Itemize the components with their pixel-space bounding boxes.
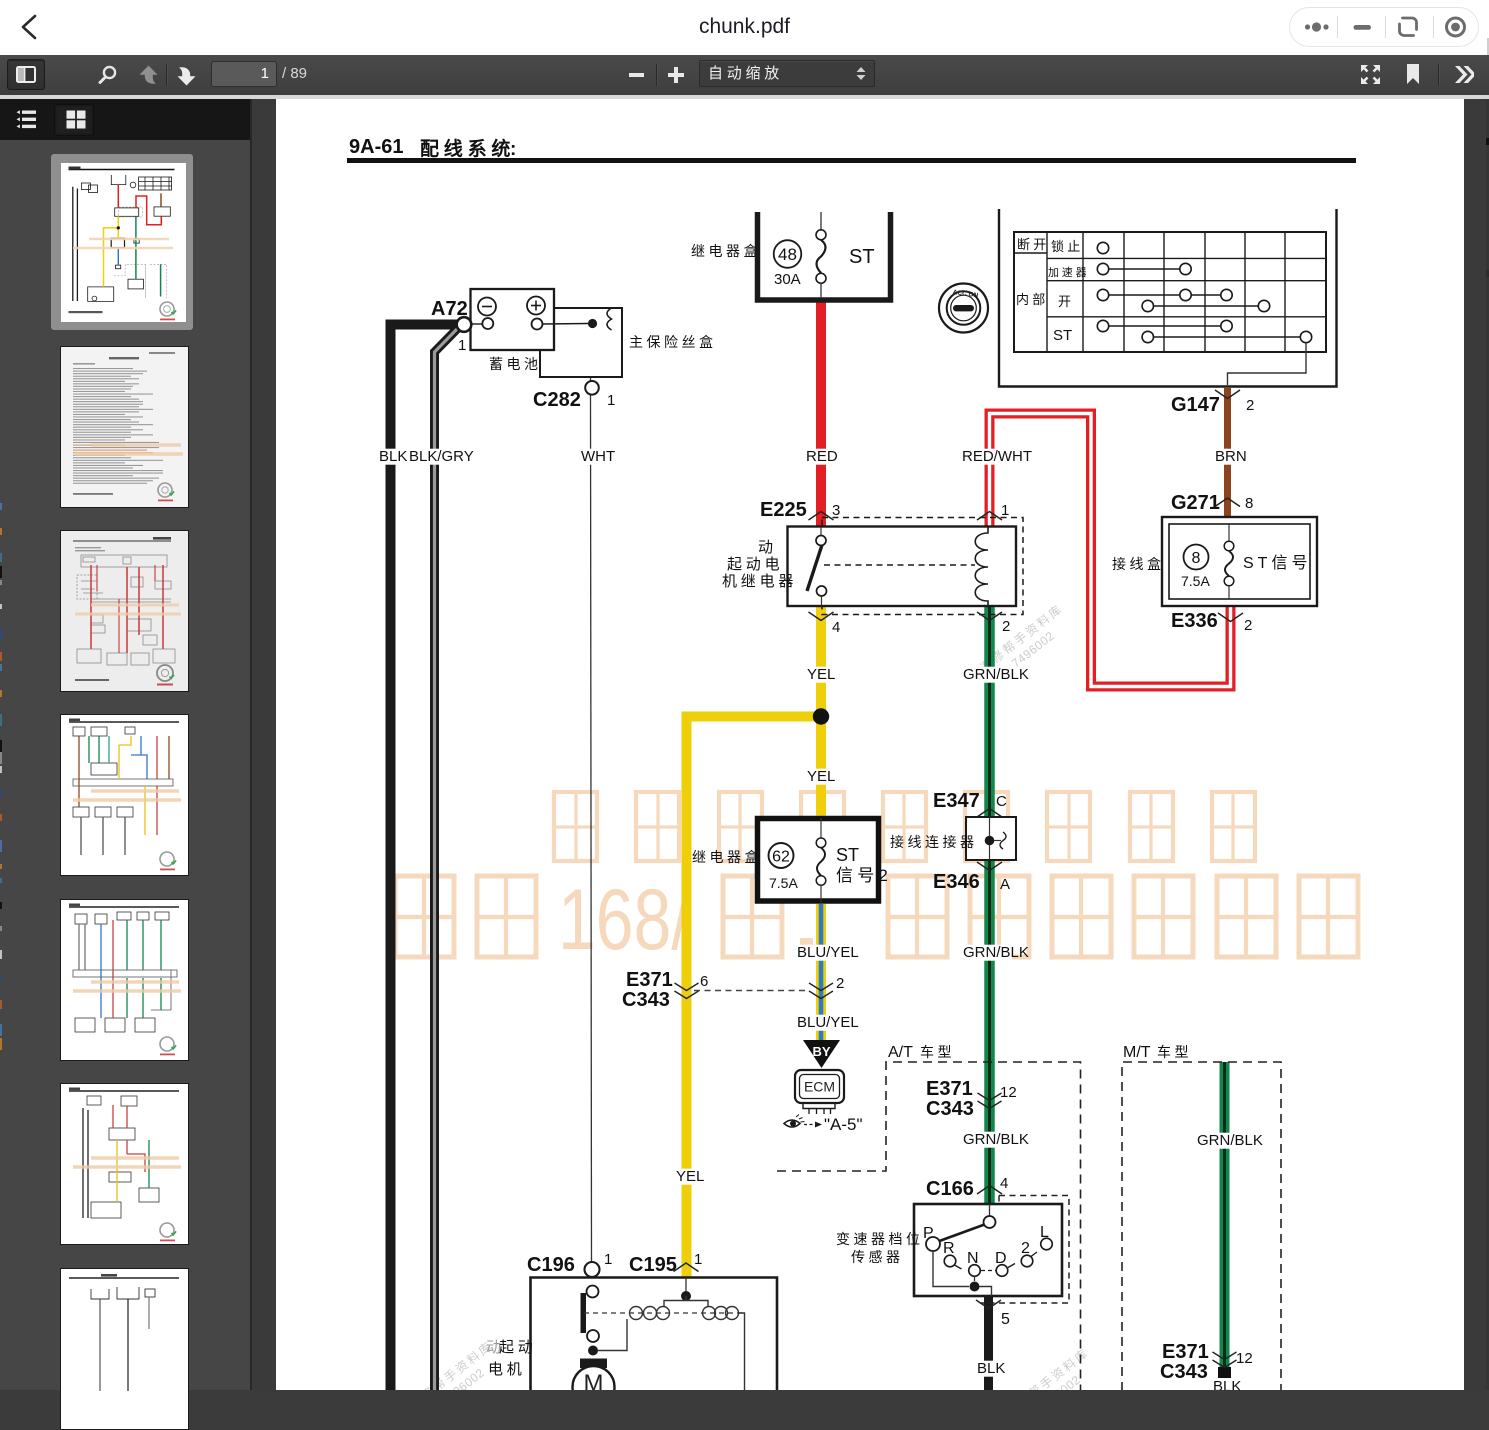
svg-text:R: R [943,1240,955,1257]
svg-text:GRN/BLK: GRN/BLK [1197,1132,1263,1149]
svg-text:P: P [923,1225,934,1242]
svg-text:BLK: BLK [379,448,407,465]
svg-text:ECM: ECM [804,1079,835,1095]
svg-text:62: 62 [772,849,790,866]
svg-text:A/T: A/T [888,1044,913,1061]
svg-text:E347: E347 [933,790,980,812]
svg-text:2: 2 [1002,618,1010,635]
svg-text:12: 12 [1000,1084,1017,1101]
svg-text:4: 4 [1000,1175,1008,1192]
svg-text:BLU/YEL: BLU/YEL [797,944,859,961]
svg-text:ST: ST [836,845,859,865]
svg-text:2: 2 [1021,1240,1030,1257]
svg-text:蓄电池: 蓄电池 [489,356,542,372]
svg-text:D: D [995,1250,1007,1267]
svg-text:9A-61: 9A-61 [349,136,403,158]
svg-text:车型: 车型 [920,1044,955,1060]
svg-text:BLK: BLK [1213,1378,1241,1390]
svg-text:继电器盒: 继电器盒 [691,243,761,259]
svg-text:A: A [1000,876,1010,893]
svg-text:YEL: YEL [676,1168,704,1185]
svg-text:车型: 车型 [1157,1044,1192,1060]
svg-text:48: 48 [778,245,797,264]
svg-text:2: 2 [836,975,844,992]
svg-text:E225: E225 [760,499,807,521]
svg-text:E371: E371 [626,969,673,991]
svg-text:G147: G147 [1171,394,1220,416]
svg-text:C282: C282 [533,389,581,411]
svg-text:C: C [996,793,1007,810]
svg-text:7.5A: 7.5A [1181,573,1210,589]
svg-text:电机: 电机 [488,1361,526,1378]
svg-text:起动: 起动 [499,1339,537,1356]
svg-text:E346: E346 [933,871,980,893]
svg-text:信号2: 信号2 [836,866,892,885]
svg-text:1: 1 [458,337,466,354]
svg-text:RED/WHT: RED/WHT [962,448,1032,465]
svg-text:3: 3 [832,502,840,519]
svg-text:E336: E336 [1171,610,1218,632]
svg-text:M: M [584,1370,604,1390]
svg-text:锁止: 锁止 [1051,239,1083,254]
svg-text:BRN: BRN [1215,448,1247,465]
svg-text:GRN/BLK: GRN/BLK [963,666,1029,683]
svg-text:A72: A72 [431,298,468,320]
svg-text:YEL: YEL [807,768,835,785]
svg-text:BLU/YEL: BLU/YEL [797,1014,859,1031]
svg-text:6: 6 [700,973,708,990]
svg-text:变速器档位: 变速器档位 [836,1231,924,1247]
svg-text:动: 动 [758,539,777,556]
svg-text:G271: G271 [1171,492,1220,514]
svg-text:168/: 168/ [558,872,691,967]
svg-text:GRN/BLK: GRN/BLK [963,944,1029,961]
svg-text:BLK: BLK [977,1360,1005,1377]
svg-text:C195: C195 [629,1254,677,1276]
svg-text:12: 12 [1236,1350,1253,1367]
svg-text:5: 5 [1001,1311,1010,1328]
svg-text:ST: ST [849,246,875,268]
svg-text:WHT: WHT [581,448,615,465]
svg-text:主保险丝盒: 主保险丝盒 [629,334,717,350]
svg-text:BLK/GRY: BLK/GRY [409,448,474,465]
svg-text:继电器盒: 继电器盒 [692,849,762,865]
svg-text:C166: C166 [926,1178,974,1200]
svg-text:GRN/BLK: GRN/BLK [963,1131,1029,1148]
svg-text:C343: C343 [1160,1361,1208,1383]
svg-text:8: 8 [1192,550,1201,567]
svg-text:断开: 断开 [1017,237,1049,252]
svg-text:E371: E371 [926,1078,973,1100]
svg-text:"A-5": "A-5" [824,1115,863,1134]
svg-text:8: 8 [1245,495,1253,512]
svg-text:2: 2 [1246,397,1254,414]
svg-text:起动电: 起动电 [727,556,783,573]
svg-text:E371: E371 [1162,1341,1209,1363]
svg-text::: : [510,139,516,160]
svg-text:1: 1 [1001,502,1009,519]
svg-text:7.5A: 7.5A [769,875,798,891]
svg-text:1: 1 [607,392,615,409]
svg-text:BY: BY [812,1044,830,1059]
svg-text:ST信号: ST信号 [1243,554,1311,572]
svg-text:接线连接器: 接线连接器 [890,834,978,850]
svg-text:M/T: M/T [1123,1044,1151,1061]
svg-text:2: 2 [1244,617,1252,634]
svg-text:传感器: 传感器 [851,1249,904,1265]
svg-text:机继电器: 机继电器 [722,573,797,590]
svg-text:L: L [1040,1224,1049,1241]
svg-text:接线盒: 接线盒 [1112,556,1165,572]
svg-text:4: 4 [832,619,840,636]
svg-text:汽修帮手资料库: 汽修帮手资料库 [407,1338,496,1390]
svg-text:加速器: 加速器 [1048,266,1089,279]
svg-text:30A: 30A [774,271,801,288]
svg-text:配线系统: 配线系统 [420,137,515,160]
svg-text:YEL: YEL [807,666,835,683]
svg-text:C343: C343 [926,1098,974,1120]
svg-text:1: 1 [694,1251,702,1268]
svg-text:N: N [967,1250,979,1267]
svg-text:C343: C343 [622,989,670,1011]
svg-text:C196: C196 [527,1254,575,1276]
svg-text:ST: ST [1053,327,1072,344]
svg-text:1: 1 [604,1251,612,1268]
svg-text:RED: RED [806,448,838,465]
svg-text:内部: 内部 [1016,292,1048,307]
svg-text:开: 开 [1058,294,1074,309]
